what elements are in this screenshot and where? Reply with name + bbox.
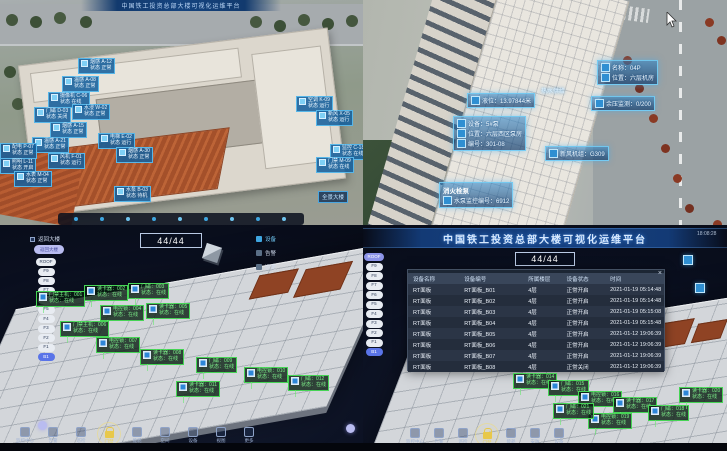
device-tag-line2: 状态：在线	[566, 411, 591, 417]
nav-item-视图[interactable]: 视图	[208, 424, 234, 444]
device-icon	[51, 94, 58, 101]
table-cell: RT面板	[408, 308, 459, 316]
floor-pill-f6[interactable]: F6	[366, 291, 383, 299]
table-cell: 4层	[523, 297, 561, 305]
info-panel[interactable]: 设备：5#泵位置：六层西区泵房编号：301-08	[453, 116, 526, 151]
table-cell: RT面板	[408, 341, 459, 349]
device-tag-text: 读卡器：002状态：在线	[97, 287, 125, 299]
device-tag[interactable]: 读卡器：011状态：在线	[176, 381, 220, 397]
device-tag-text: 监控 C-18状态 在线	[342, 146, 363, 158]
quadrant-tower-view: 名称：04P位置：六层机房新风机组：G309液位：13.97844米余压监测：0…	[363, 0, 727, 225]
device-tag-text: 门磁：018状态：在线	[661, 407, 686, 419]
info-panel-row: 设备：5#泵	[457, 119, 522, 128]
device-tag-text: 烟感 A-12状态 正常	[90, 60, 112, 72]
table-cell: 2021-01-12 19:06:39	[605, 331, 664, 337]
nav-icon	[530, 428, 540, 438]
layer-label: 设备	[265, 235, 276, 243]
device-icon	[651, 407, 659, 415]
device-icon	[179, 383, 187, 391]
floor-pill-f2[interactable]: F2	[366, 329, 383, 337]
device-tag-line2: 状态 正常	[90, 66, 112, 72]
info-panel[interactable]: 消火栓泵水泵监控编号：6912	[439, 182, 513, 208]
info-panel-text: 水泵监控编号：6912	[454, 196, 509, 205]
device-tag-text: 电控锁：019状态：在线	[601, 415, 629, 427]
table-row[interactable]: RT面板RT面板_B034层正常开启2021-01-19 05:15:08	[408, 306, 664, 317]
table-cell: RT面板_B04	[459, 319, 523, 327]
device-tag[interactable]: 门禁主机：001状态：在线	[36, 291, 85, 307]
nav-icon	[160, 427, 170, 437]
floor-pill-roof[interactable]: ROOF	[36, 258, 56, 266]
device-tag-line2: 状态 关闭	[46, 115, 68, 121]
device-tag-line2: 状态 运行	[60, 161, 82, 167]
floor-selector: ROOFF9F8F7F6F5F4F3F2F1B1	[364, 253, 384, 356]
device-tag[interactable]: 门磁：012状态：在线	[288, 375, 329, 391]
quadrant-floorplan-devices: 返回大楼 返回大楼 44/44 设备告警巡更 ROOFF9F8F7F6F5F4F…	[0, 225, 363, 451]
info-panel-text: 新风机组：G309	[560, 149, 605, 158]
panorama-button[interactable]: 全景大楼	[318, 191, 348, 203]
info-panel[interactable]: 液位：13.97844米	[467, 93, 535, 108]
device-icon	[291, 377, 299, 385]
device-tag[interactable]: 新风 X-05状态 运行	[316, 110, 353, 126]
device-tag-line2: 状态 运行	[308, 104, 330, 110]
device-tag[interactable]: 电控锁：010状态：在线	[244, 367, 288, 383]
device-tag[interactable]: 水表 M-04状态 正常	[14, 171, 52, 187]
close-icon[interactable]: ×	[658, 270, 662, 277]
quadrant-aerial-overview: 中国铁工投资总部大楼可视化运维平台 烟感 A-12状态 正常温感 A-08状态 …	[0, 0, 363, 225]
floor-pill-f9[interactable]: F9	[38, 268, 55, 276]
device-icon	[601, 63, 610, 72]
table-cell: 正常开启	[562, 330, 606, 338]
quadrant-floorplan-table: 中国铁工投资总部大楼可视化运维平台 18:08:28 44/44 × 设备名称设…	[363, 225, 727, 451]
device-icon	[516, 375, 524, 383]
device-tag-line2: 状态：在线	[189, 389, 217, 395]
floor-pill-b1[interactable]: B1	[38, 353, 55, 361]
table-row[interactable]: RT面板RT面板_B074层正常开启2021-01-12 19:06:39	[408, 350, 664, 361]
floor-pill-roof[interactable]: ROOF	[364, 253, 384, 261]
floor-area	[691, 319, 727, 343]
device-icon	[75, 106, 82, 113]
device-tag-text: 烟感 A-15状态 正常	[62, 124, 84, 136]
table-header-cell: 设备状态	[562, 275, 606, 283]
table-cell: 正常开启	[562, 297, 606, 305]
floor-area	[293, 261, 353, 298]
device-tag-line2: 状态 正常	[12, 151, 34, 157]
info-panel-row: 新风机组：G309	[549, 149, 605, 158]
floor-area	[249, 268, 299, 299]
device-tag-text: 读卡器：011状态：在线	[189, 383, 217, 395]
device-icon	[616, 399, 624, 407]
device-tag-line2: 状态 正常	[26, 179, 49, 185]
device-icon	[319, 159, 326, 166]
device-tag-line2: 状态：在线	[601, 421, 629, 427]
device-icon	[149, 305, 157, 313]
table-cell: 正常开启	[562, 352, 606, 360]
device-tag-text: 电梯 E-02状态 运行	[110, 135, 132, 147]
device-tag[interactable]: 配电 P-07状态 正常	[0, 143, 37, 159]
table-row[interactable]: RT面板RT面板_B054层正常开启2021-01-12 19:06:39	[408, 328, 664, 339]
device-tag[interactable]: 电控锁：004状态：在线	[100, 305, 144, 321]
device-icon	[37, 109, 44, 116]
table-cell: 正常开启	[562, 341, 606, 349]
device-counter: 44/44	[140, 233, 202, 248]
info-panel-row: 名称：04P	[601, 63, 654, 72]
table-cell: 4层	[523, 319, 561, 327]
device-icon	[119, 149, 126, 156]
view-cube-icon[interactable]	[202, 243, 222, 263]
table-row[interactable]: RT面板RT面板_B014层正常开启2021-01-19 05:14:48	[408, 284, 664, 295]
table-row[interactable]: RT面板RT面板_B024层正常开启2021-01-19 05:14:48	[408, 295, 664, 306]
device-tag[interactable]: 读卡器：020状态：在线	[679, 387, 723, 403]
floor-pill-f2[interactable]: F2	[38, 334, 55, 342]
device-table-panel: × 设备名称设备编号所属楼层设备状态时间RT面板RT面板_B014层正常开启20…	[407, 269, 665, 371]
device-tag-text: 温感 A-21状态 正常	[44, 139, 66, 151]
info-panel-text: 位置：六层西区泵房	[468, 129, 522, 138]
layer-toggle-巡更[interactable]: 巡更	[256, 263, 276, 271]
table-cell: RT面板	[408, 319, 459, 327]
device-tag[interactable]: 读卡器：002状态：在线	[84, 285, 128, 301]
floor-pill-f9[interactable]: F9	[366, 263, 383, 271]
info-panel[interactable]: 名称：04P位置：六层机房	[597, 60, 658, 85]
device-tag-line2: 状态 正常	[74, 84, 96, 90]
mouse-cursor	[666, 12, 678, 28]
table-header-cell: 设备编号	[459, 275, 523, 283]
device-tag[interactable]: 门磁：003状态：在线	[128, 283, 169, 299]
layer-toggle-设备[interactable]: 设备	[256, 235, 276, 243]
info-panel[interactable]: 余压监测：0/200	[591, 96, 655, 111]
nav-icon	[506, 428, 516, 438]
layer-label: 巡更	[265, 263, 276, 271]
info-panel-text: 液位：13.97844米	[482, 96, 531, 105]
device-tag[interactable]: 读卡器：008状态：在线	[140, 349, 184, 365]
device-tag-line2: 状态：在线	[109, 345, 137, 351]
device-icon	[333, 146, 340, 153]
back-to-building-toggle[interactable]: 返回大楼	[30, 235, 60, 243]
floor-pill-f4[interactable]: F4	[38, 315, 55, 323]
device-icon	[87, 287, 95, 295]
nav-item-能耗[interactable]: 能耗	[124, 424, 150, 444]
device-tag[interactable]: 门磁：018状态：在线	[648, 405, 689, 421]
device-tag[interactable]: 门禁主机：006状态：在线	[60, 321, 109, 337]
table-cell: 2021-01-12 19:06:39	[605, 342, 664, 348]
device-tag-line2: 状态：在线	[113, 313, 141, 319]
device-tag-text: 电控锁：007状态：在线	[109, 339, 137, 351]
layer-marker-icon	[256, 236, 262, 242]
back-label: 返回大楼	[38, 235, 60, 243]
table-cell: RT面板	[408, 286, 459, 294]
device-counter: 44/44	[515, 252, 575, 266]
bottom-strip	[0, 443, 363, 451]
device-icon	[443, 196, 452, 205]
device-tag-line2: 状态 正常	[128, 155, 150, 161]
device-tag[interactable]: 水浸 W-02状态 正常	[72, 104, 110, 120]
device-tag-text: 门磁：012状态：在线	[301, 377, 326, 389]
device-tag[interactable]: 温感 A-08状态 正常	[62, 76, 99, 92]
info-panel[interactable]: 新风机组：G309	[545, 146, 609, 161]
device-tag-text: 门磁：021状态：在线	[566, 405, 591, 417]
layer-marker-icon	[256, 264, 262, 270]
device-icon	[3, 145, 10, 152]
table-cell: RT面板_B02	[459, 297, 523, 305]
device-tag-text: 读卡器：008状态：在线	[153, 351, 181, 363]
device-icon	[17, 173, 24, 180]
device-tag-text: 电控锁：004状态：在线	[113, 307, 141, 319]
device-icon	[117, 188, 124, 195]
info-panel-row: 水泵监控编号：6912	[443, 196, 509, 205]
floor-pill-f8[interactable]: F8	[38, 277, 55, 285]
table-cell: 2021-01-19 05:15:08	[605, 309, 664, 315]
floor-selector: ROOFF9F8F7F6F5F4F3F2F1B1	[36, 258, 56, 361]
device-icon	[556, 405, 564, 413]
table-cell: RT面板	[408, 330, 459, 338]
table-cell: 4层	[523, 363, 561, 371]
back-button[interactable]: 返回大楼	[34, 245, 64, 254]
nav-icon	[554, 428, 564, 438]
table-cell: 正常开启	[562, 319, 606, 327]
checkbox-icon	[30, 237, 35, 242]
nav-item-空间[interactable]: 空间	[152, 424, 178, 444]
floor-pill-f8[interactable]: F8	[366, 272, 383, 280]
device-tag-line2: 状态 运行	[328, 118, 350, 124]
device-icon	[39, 293, 47, 301]
device-tag[interactable]: 电控锁：007状态：在线	[96, 337, 140, 353]
info-panel-text: 余压监测：0/200	[606, 99, 651, 108]
device-icon	[595, 99, 604, 108]
device-tag-text: 空调 K-09状态 运行	[308, 98, 330, 110]
table-cell: RT面板_B08	[459, 363, 523, 371]
info-panel-row: 位置：六层机房	[601, 73, 654, 82]
table-cell: 4层	[523, 341, 561, 349]
device-icon[interactable]	[695, 283, 705, 293]
floor-pill-f7[interactable]: F7	[366, 282, 383, 290]
device-tag-text: 配电 P-07状态 正常	[12, 145, 34, 157]
device-tag-line2: 状态 正常	[62, 130, 84, 136]
info-panel-text: 设备：5#泵	[468, 119, 499, 128]
table-cell: 正常关闭	[562, 363, 606, 371]
device-tag-line2: 状态 在线	[328, 165, 351, 171]
device-icon	[63, 323, 71, 331]
table-cell: 2021-01-19 05:14:48	[605, 298, 664, 304]
device-tag-line2: 状态：在线	[97, 293, 125, 299]
nav-item-设备[interactable]: 设备	[547, 425, 571, 445]
info-panel-row: 编号：301-08	[457, 139, 522, 148]
device-tag-text: 门磁：009状态：在线	[209, 359, 234, 371]
layer-label: 告警	[265, 249, 276, 257]
device-icon	[457, 129, 466, 138]
page-title-bar: 中国铁工投资总部大楼可视化运维平台	[363, 228, 727, 248]
device-tag-text: 水泵 B-03状态 待机	[126, 188, 148, 200]
device-tag-line2: 状态：在线	[661, 413, 686, 419]
device-tag-text: 门禁主机：006状态：在线	[73, 323, 106, 335]
table-cell: 4层	[523, 308, 561, 316]
device-tag-text: 门磁 D-03状态 关闭	[46, 109, 68, 121]
table-cell: 2021-01-12 19:06:39	[605, 353, 664, 359]
device-tag-text: 水浸 W-02状态 正常	[84, 106, 107, 118]
trees	[6, 14, 18, 26]
nav-item-告警[interactable]: 告警	[40, 424, 66, 444]
device-tag[interactable]: 电控锁：019状态：在线	[588, 413, 632, 429]
device-tag[interactable]: 门禁 M-09状态 在线	[316, 157, 354, 173]
device-tag-line2: 状态 正常	[44, 145, 66, 151]
layer-toggle-list: 设备告警巡更	[256, 235, 276, 271]
device-tag-text: 门禁 M-09状态 在线	[328, 159, 351, 171]
device-tag-text: 烟感 A-30状态 正常	[128, 149, 150, 161]
bottom-strip	[363, 443, 727, 451]
device-tag-line2: 状态 正常	[84, 112, 107, 118]
device-tag-line2: 状态：在线	[153, 357, 181, 363]
device-tag[interactable]: 风机 F-01状态 运行	[48, 153, 85, 169]
table-header-row: 设备名称设备编号所属楼层设备状态时间	[408, 273, 664, 284]
table-cell: 2021-01-19 05:15:48	[605, 320, 664, 326]
table-cell: 正常开启	[562, 286, 606, 294]
device-tag-text: 新风 X-05状态 运行	[328, 112, 350, 124]
device-tag-text: 读卡器：005状态：在线	[159, 305, 187, 317]
device-tag-text: 照明 L-11状态 开启	[12, 160, 33, 172]
device-tag-line2: 状态：在线	[141, 291, 166, 297]
lock-icon	[105, 431, 114, 438]
table-row[interactable]: RT面板RT面板_B064层正常开启2021-01-12 19:06:39	[408, 339, 664, 350]
device-icon[interactable]	[683, 255, 693, 265]
device-icon	[581, 393, 589, 401]
device-tag[interactable]: 温感 A-21状态 正常	[32, 137, 69, 153]
table-header-cell: 设备名称	[408, 275, 459, 283]
device-tag[interactable]: 门磁：021状态：在线	[553, 403, 594, 419]
device-tag-text: 水表 M-04状态 正常	[26, 173, 49, 185]
table-cell: 4层	[523, 286, 561, 294]
device-tag-line2: 状态 待机	[126, 194, 148, 200]
device-icon	[601, 73, 610, 82]
floor-pill-f5[interactable]: F5	[38, 306, 55, 314]
table-cell: 2021-01-19 05:14:48	[605, 287, 664, 293]
device-tag-line2: 状态：在线	[73, 329, 106, 335]
device-tag-line2: 状态：在线	[159, 311, 187, 317]
table-cell: 正常开启	[562, 308, 606, 316]
lock-icon	[483, 432, 492, 439]
device-tag-line2: 状态：在线	[692, 395, 720, 401]
device-icon	[319, 112, 326, 119]
device-tag-line2: 状态 运行	[110, 141, 132, 147]
nav-item-设备[interactable]: 设备	[180, 424, 206, 444]
clock-readout: 18:08:28	[697, 231, 716, 238]
floor-pill-b1[interactable]: B1	[366, 348, 383, 356]
device-tag-line2: 状态：在线	[257, 375, 285, 381]
nav-item-监控中心[interactable]: 监控中心	[403, 425, 427, 445]
nav-icon	[216, 427, 226, 437]
nav-icon	[132, 427, 142, 437]
floor-pill-f4[interactable]: F4	[366, 310, 383, 318]
layer-marker-icon	[256, 250, 262, 256]
floor-pill-f5[interactable]: F5	[366, 301, 383, 309]
table-cell: RT面板_B03	[459, 308, 523, 316]
device-tag[interactable]: 烟感 A-15状态 正常	[50, 122, 87, 138]
table-cell: RT面板_B01	[459, 286, 523, 294]
floor-pill-f3[interactable]: F3	[366, 320, 383, 328]
table-cell: 4层	[523, 330, 561, 338]
device-icon	[551, 382, 559, 390]
device-tag[interactable]: 烟感 A-30状态 正常	[116, 147, 153, 163]
floor-pill-f3[interactable]: F3	[38, 325, 55, 333]
device-tag-text: 门禁主机：001状态：在线	[49, 293, 82, 305]
device-tag-line2: 状态：在线	[301, 383, 326, 389]
info-panel-row: 位置：六层西区泵房	[457, 129, 522, 138]
four-view-collage: 中国铁工投资总部大楼可视化运维平台 烟感 A-12状态 正常温感 A-08状态 …	[0, 0, 727, 451]
nav-item-巡检[interactable]: 巡检	[451, 425, 475, 445]
device-icon	[247, 369, 255, 377]
table-cell: RT面板_B06	[459, 341, 523, 349]
device-tag-text: 门磁：003状态：在线	[141, 285, 166, 297]
nav-item-安防[interactable]: 安防	[523, 425, 547, 445]
device-icon	[65, 78, 72, 85]
toolbar-icons	[74, 217, 78, 221]
nav-item-告警[interactable]: 告警	[427, 425, 451, 445]
device-icon	[199, 359, 207, 367]
device-icon	[457, 139, 466, 148]
table-cell: RT面板_B05	[459, 330, 523, 338]
nav-icon	[434, 428, 444, 438]
table-cell: RT面板_B07	[459, 352, 523, 360]
nav-item-监控中心[interactable]: 监控中心	[12, 424, 38, 444]
device-tag-line2: 状态：在线	[209, 365, 234, 371]
device-tag[interactable]: 烟感 A-12状态 正常	[78, 58, 115, 74]
device-tag[interactable]: 门磁：009状态：在线	[196, 357, 237, 373]
road-lane-line	[679, 0, 682, 225]
device-icon	[51, 155, 58, 162]
device-tag-line2: 状态：在线	[49, 299, 82, 305]
device-icon	[682, 389, 690, 397]
bottom-nav-bar: 监控中心告警巡检门禁能耗空间设备视图更多	[0, 424, 363, 445]
nav-item-门禁[interactable]: 门禁	[96, 424, 122, 445]
page-title: 中国铁工投资总部大楼可视化运维平台	[121, 1, 240, 10]
float-label: 热水供给	[541, 86, 565, 95]
info-panel-text: 位置：六层机房	[612, 73, 654, 82]
page-title: 中国铁工投资总部大楼可视化运维平台	[443, 231, 647, 246]
device-tag-text: 读卡器：020状态：在线	[692, 389, 720, 401]
nav-item-能耗[interactable]: 能耗	[499, 425, 523, 445]
info-panel-row: 液位：13.97844米	[471, 96, 531, 105]
info-panel-text: 编号：301-08	[468, 139, 505, 148]
table-cell: 4层	[523, 352, 561, 360]
device-tag-text: 风机 F-01状态 运行	[60, 155, 82, 167]
nav-icon	[244, 427, 254, 437]
nav-item-巡检[interactable]: 巡检	[68, 424, 94, 444]
mini-toolbar[interactable]	[58, 213, 304, 225]
table-cell: RT面板	[408, 363, 459, 371]
nav-icon	[410, 428, 420, 438]
device-tag[interactable]: 读卡器：005状态：在线	[146, 303, 190, 319]
page-title-bar: 中国铁工投资总部大楼可视化运维平台	[81, 0, 281, 11]
device-icon	[103, 307, 111, 315]
nav-item-更多[interactable]: 更多	[236, 424, 262, 444]
info-panel-text: 名称：04P	[612, 63, 641, 72]
device-icon	[131, 285, 139, 293]
device-icon	[53, 124, 60, 131]
device-tag[interactable]: 门磁 D-03状态 关闭	[34, 107, 71, 123]
device-icon	[3, 160, 10, 167]
floor-pill-f1[interactable]: F1	[366, 339, 383, 347]
layer-toggle-告警[interactable]: 告警	[256, 249, 276, 257]
floor-pill-f1[interactable]: F1	[38, 344, 55, 352]
nav-icon	[458, 428, 468, 438]
table-header-cell: 时间	[605, 275, 664, 283]
device-tag-text: 电控锁：010状态：在线	[257, 369, 285, 381]
table-row[interactable]: RT面板RT面板_B044层正常开启2021-01-19 05:15:48	[408, 317, 664, 328]
info-panel-title: 消火栓泵	[443, 185, 509, 195]
device-icon	[549, 149, 558, 158]
device-icon	[101, 135, 108, 142]
nav-icon	[76, 427, 86, 437]
info-panel-row: 余压监测：0/200	[595, 99, 651, 108]
table-row[interactable]: RT面板RT面板_B084层正常关闭2021-01-12 19:06:39	[408, 361, 664, 372]
device-tag[interactable]: 水泵 B-03状态 待机	[114, 186, 151, 202]
